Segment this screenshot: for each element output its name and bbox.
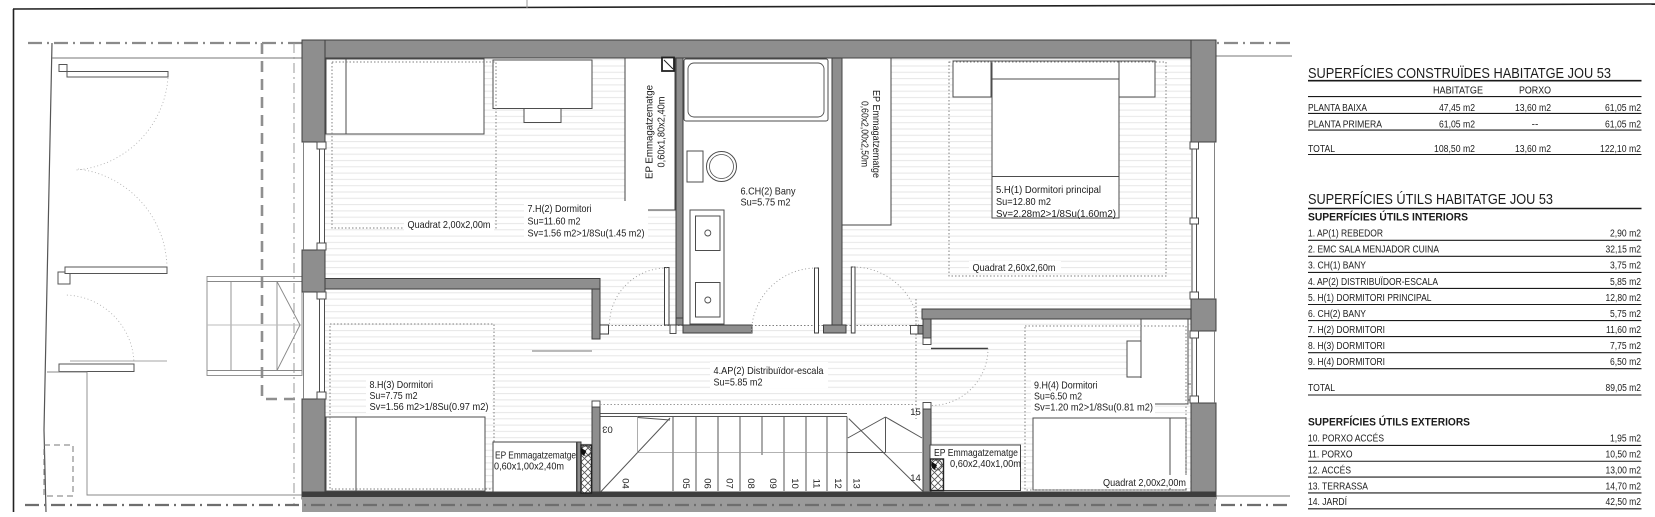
svg-text:4. AP(2) DISTRIBUÏDOR-ESCALA: 4. AP(2) DISTRIBUÏDOR-ESCALA bbox=[1308, 276, 1438, 288]
svg-text:--: -- bbox=[1532, 120, 1539, 131]
svg-text:TOTAL: TOTAL bbox=[1308, 383, 1335, 394]
svg-text:PLANTA BAIXA: PLANTA BAIXA bbox=[1308, 103, 1367, 114]
svg-text:EP Emmagatzematge: EP Emmagatzematge bbox=[645, 85, 656, 179]
svg-text:122,10 m2: 122,10 m2 bbox=[1600, 144, 1641, 155]
svg-text:EP Emmagatzematge: EP Emmagatzematge bbox=[934, 448, 1018, 459]
svg-text:12: 12 bbox=[832, 478, 843, 489]
svg-text:EP Emmagatzematge: EP Emmagatzematge bbox=[495, 451, 576, 462]
svg-text:0,60x2,40x1,00m: 0,60x2,40x1,00m bbox=[950, 459, 1021, 470]
svg-text:Quadrat 2,00x2,00m: Quadrat 2,00x2,00m bbox=[408, 220, 491, 231]
svg-text:Su=6.50 m2: Su=6.50 m2 bbox=[1034, 392, 1082, 403]
svg-text:9. H(4) DORMITORI: 9. H(4) DORMITORI bbox=[1308, 357, 1385, 368]
svg-text:Sv=2.28m2>1/8Su(1.60m2): Sv=2.28m2>1/8Su(1.60m2) bbox=[996, 209, 1116, 220]
svg-text:10. PORXO ACCÉS: 10. PORXO ACCÉS bbox=[1308, 432, 1384, 445]
svg-text:0,60x1,80x2,40m: 0,60x1,80x2,40m bbox=[657, 97, 668, 168]
svg-text:7.H(2) Dormitori: 7.H(2) Dormitori bbox=[528, 204, 592, 215]
svg-text:PORXO: PORXO bbox=[1519, 86, 1551, 97]
svg-text:13. TERRASSA: 13. TERRASSA bbox=[1308, 481, 1368, 492]
svg-text:42,50 m2: 42,50 m2 bbox=[1606, 497, 1642, 508]
svg-text:09: 09 bbox=[767, 478, 778, 489]
svg-text:03: 03 bbox=[602, 424, 613, 435]
svg-text:61,05 m2: 61,05 m2 bbox=[1439, 120, 1475, 131]
svg-text:Su=5.85 m2: Su=5.85 m2 bbox=[714, 377, 763, 388]
svg-text:06: 06 bbox=[702, 478, 713, 489]
svg-text:13,00 m2: 13,00 m2 bbox=[1606, 465, 1642, 476]
svg-text:Su=7.75 m2: Su=7.75 m2 bbox=[370, 391, 418, 402]
svg-text:5,75 m2: 5,75 m2 bbox=[1610, 309, 1641, 320]
svg-text:61,05 m2: 61,05 m2 bbox=[1605, 120, 1641, 131]
svg-text:14: 14 bbox=[910, 473, 921, 484]
svg-text:05: 05 bbox=[680, 478, 691, 489]
svg-text:TOTAL: TOTAL bbox=[1308, 144, 1335, 155]
svg-text:6,50 m2: 6,50 m2 bbox=[1610, 357, 1641, 368]
svg-text:7,75 m2: 7,75 m2 bbox=[1610, 341, 1641, 352]
svg-text:32,15 m2: 32,15 m2 bbox=[1606, 245, 1642, 256]
svg-text:108,50 m2: 108,50 m2 bbox=[1434, 144, 1475, 155]
svg-text:5.H(1) Dormitori principal: 5.H(1) Dormitori principal bbox=[996, 185, 1101, 196]
svg-text:12. ACCÉS: 12. ACCÉS bbox=[1308, 463, 1351, 476]
svg-text:PLANTA PRIMERA: PLANTA PRIMERA bbox=[1308, 120, 1382, 131]
svg-text:Su=11.60 m2: Su=11.60 m2 bbox=[528, 216, 581, 227]
svg-text:15: 15 bbox=[910, 407, 921, 418]
svg-text:1. AP(1) REBEDOR: 1. AP(1) REBEDOR bbox=[1308, 229, 1383, 240]
svg-text:Quadrat 2,00x2,00m: Quadrat 2,00x2,00m bbox=[1103, 478, 1186, 489]
svg-text:8.H(3) Dormitori: 8.H(3) Dormitori bbox=[370, 380, 434, 391]
svg-text:6.CH(2) Bany: 6.CH(2) Bany bbox=[741, 186, 797, 197]
svg-text:SUPERFÍCIES ÚTILS HABITATGE JO: SUPERFÍCIES ÚTILS HABITATGE JOU 53 bbox=[1308, 191, 1553, 208]
svg-text:HABITATGE: HABITATGE bbox=[1433, 86, 1483, 97]
svg-text:47,45 m2: 47,45 m2 bbox=[1439, 103, 1475, 114]
svg-text:SUPERFÍCIES ÚTILS EXTERIORS: SUPERFÍCIES ÚTILS EXTERIORS bbox=[1308, 415, 1470, 428]
svg-text:10: 10 bbox=[789, 478, 800, 489]
svg-text:14. JARDÍ: 14. JARDÍ bbox=[1308, 495, 1347, 508]
svg-text:12,80 m2: 12,80 m2 bbox=[1606, 293, 1642, 304]
svg-text:4.AP(2) Distribuïdor-escala: 4.AP(2) Distribuïdor-escala bbox=[714, 366, 824, 377]
svg-text:13: 13 bbox=[851, 478, 862, 489]
svg-text:EP Emmagatzematge: EP Emmagatzematge bbox=[870, 90, 881, 178]
svg-text:5. H(1) DORMITORI PRINCIPAL: 5. H(1) DORMITORI PRINCIPAL bbox=[1308, 293, 1432, 304]
svg-text:0,60x2,00x2,50m: 0,60x2,00x2,50m bbox=[859, 101, 870, 167]
svg-text:13,60 m2: 13,60 m2 bbox=[1515, 103, 1551, 114]
svg-text:10,50 m2: 10,50 m2 bbox=[1606, 450, 1642, 461]
svg-text:Sv=1.56 m2>1/8Su(1.45 m2): Sv=1.56 m2>1/8Su(1.45 m2) bbox=[528, 229, 645, 240]
svg-text:9.H(4) Dormitori: 9.H(4) Dormitori bbox=[1034, 381, 1098, 392]
svg-text:0,60x1,00x2,40m: 0,60x1,00x2,40m bbox=[494, 462, 564, 473]
svg-text:Su=12.80 m2: Su=12.80 m2 bbox=[996, 197, 1051, 208]
svg-text:Su=5.75 m2: Su=5.75 m2 bbox=[741, 198, 791, 209]
svg-text:14,70 m2: 14,70 m2 bbox=[1606, 481, 1642, 492]
svg-text:Quadrat 2,60x2,60m: Quadrat 2,60x2,60m bbox=[973, 263, 1056, 274]
svg-text:04: 04 bbox=[620, 478, 631, 489]
svg-text:Sv=1.56 m2>1/8Su(0.97 m2): Sv=1.56 m2>1/8Su(0.97 m2) bbox=[370, 402, 489, 413]
svg-text:8. H(3) DORMITORI: 8. H(3) DORMITORI bbox=[1308, 341, 1385, 352]
svg-text:1,95 m2: 1,95 m2 bbox=[1610, 434, 1641, 445]
svg-text:SUPERFÍCIES CONSTRUÏDES HABITA: SUPERFÍCIES CONSTRUÏDES HABITATGE JOU 53 bbox=[1308, 65, 1611, 82]
svg-text:2,90 m2: 2,90 m2 bbox=[1610, 229, 1641, 240]
svg-text:11,60 m2: 11,60 m2 bbox=[1606, 325, 1641, 336]
svg-text:11. PORXO: 11. PORXO bbox=[1308, 450, 1353, 461]
svg-text:Sv=1.20 m2>1/8Su(0.81 m2): Sv=1.20 m2>1/8Su(0.81 m2) bbox=[1034, 403, 1153, 414]
svg-text:7. H(2) DORMITORI: 7. H(2) DORMITORI bbox=[1308, 325, 1385, 336]
svg-text:07: 07 bbox=[724, 478, 735, 489]
svg-text:89,05 m2: 89,05 m2 bbox=[1606, 383, 1642, 394]
svg-text:13,60 m2: 13,60 m2 bbox=[1515, 144, 1551, 155]
svg-text:3,75 m2: 3,75 m2 bbox=[1610, 261, 1641, 272]
svg-text:6. CH(2) BANY: 6. CH(2) BANY bbox=[1308, 309, 1366, 320]
svg-text:SUPERFÍCIES ÚTILS INTERIORS: SUPERFÍCIES ÚTILS INTERIORS bbox=[1308, 211, 1468, 224]
svg-text:5,85 m2: 5,85 m2 bbox=[1610, 277, 1641, 288]
svg-text:08: 08 bbox=[745, 478, 756, 489]
svg-text:2. EMC SALA MENJADOR CUINA: 2. EMC SALA MENJADOR CUINA bbox=[1308, 245, 1439, 256]
svg-text:61,05 m2: 61,05 m2 bbox=[1605, 103, 1641, 114]
svg-text:3. CH(1) BANY: 3. CH(1) BANY bbox=[1308, 261, 1366, 272]
svg-text:11: 11 bbox=[811, 479, 822, 489]
